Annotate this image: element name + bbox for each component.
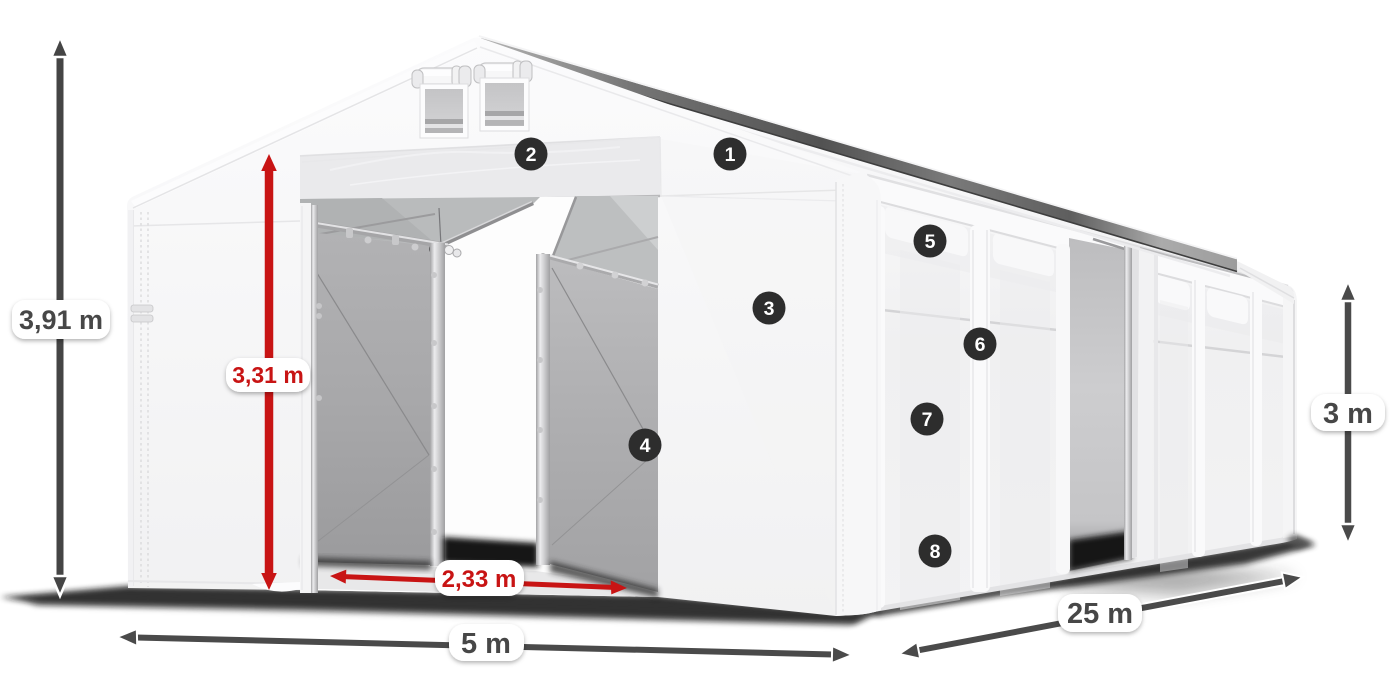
svg-text:5: 5 bbox=[925, 231, 936, 253]
svg-text:2,33 m: 2,33 m bbox=[442, 566, 517, 593]
svg-text:7: 7 bbox=[922, 409, 933, 431]
svg-text:6: 6 bbox=[975, 334, 986, 356]
svg-text:25 m: 25 m bbox=[1067, 598, 1133, 630]
svg-text:3 m: 3 m bbox=[1323, 398, 1373, 430]
svg-text:3,31 m: 3,31 m bbox=[232, 362, 304, 388]
svg-text:1: 1 bbox=[725, 144, 736, 166]
svg-text:3: 3 bbox=[764, 298, 775, 320]
svg-text:3,91 m: 3,91 m bbox=[19, 305, 103, 335]
svg-text:8: 8 bbox=[930, 541, 941, 563]
svg-text:4: 4 bbox=[640, 435, 651, 457]
svg-text:2: 2 bbox=[526, 144, 537, 166]
svg-text:5 m: 5 m bbox=[461, 628, 511, 660]
